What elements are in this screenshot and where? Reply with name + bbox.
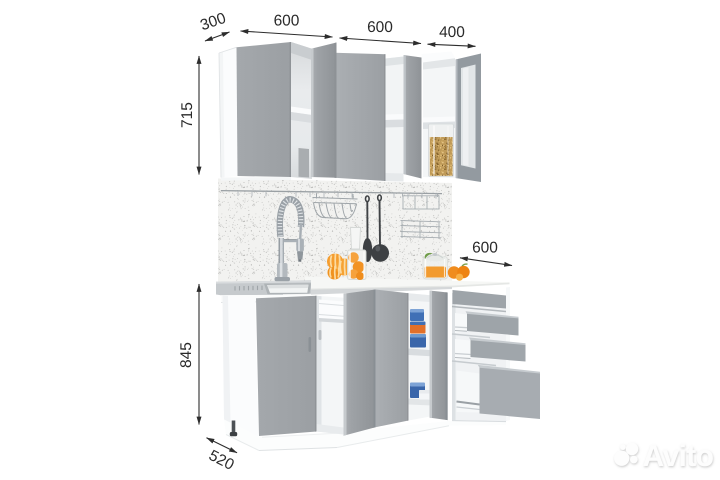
svg-text:400: 400: [439, 24, 465, 41]
svg-text:715: 715: [179, 102, 196, 128]
svg-text:600: 600: [274, 13, 300, 30]
svg-text:600: 600: [367, 19, 393, 36]
svg-text:Avito: Avito: [643, 440, 714, 473]
svg-text:845: 845: [178, 342, 195, 368]
svg-text:600: 600: [472, 240, 498, 257]
